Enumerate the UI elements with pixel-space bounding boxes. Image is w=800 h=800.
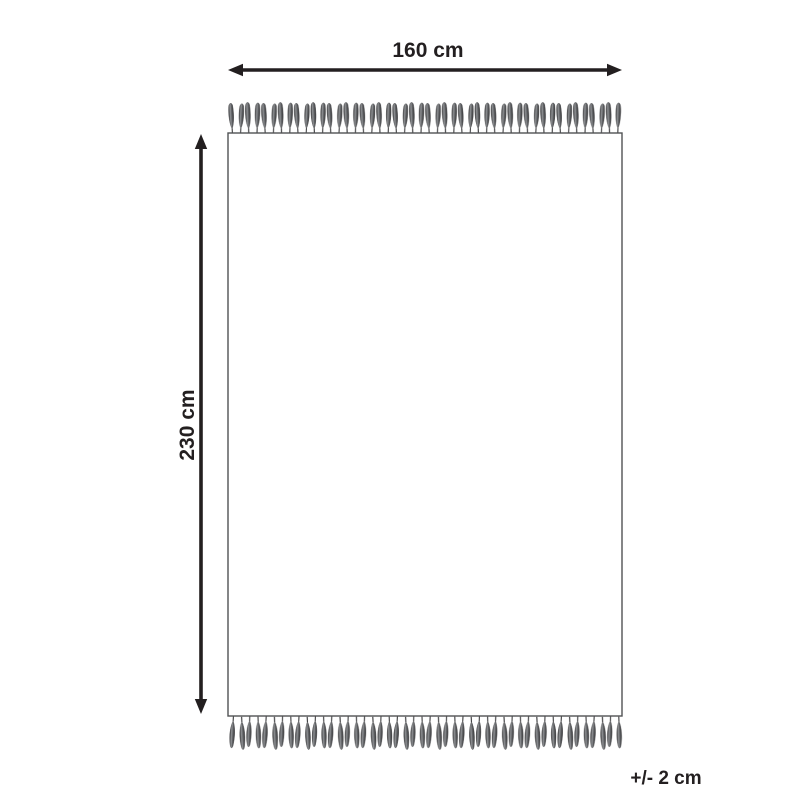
height-dimension-label: 230 cm [176, 389, 199, 460]
tolerance-label: +/- 2 cm [630, 768, 701, 789]
arrowhead-up-icon [195, 134, 207, 149]
rug-bottom-fringe [229, 716, 623, 755]
rug-top-fringe [228, 96, 622, 133]
rug-outline [228, 133, 622, 716]
arrowhead-right-icon [607, 64, 622, 76]
arrowhead-down-icon [195, 699, 207, 714]
diagram-canvas: 160 cm 230 cm +/- 2 cm [0, 0, 800, 800]
width-dimension-arrow [228, 64, 622, 76]
width-dimension-label: 160 cm [392, 39, 463, 62]
rug-dimension-diagram: 160 cm 230 cm +/- 2 cm [0, 0, 800, 800]
arrowhead-left-icon [228, 64, 243, 76]
